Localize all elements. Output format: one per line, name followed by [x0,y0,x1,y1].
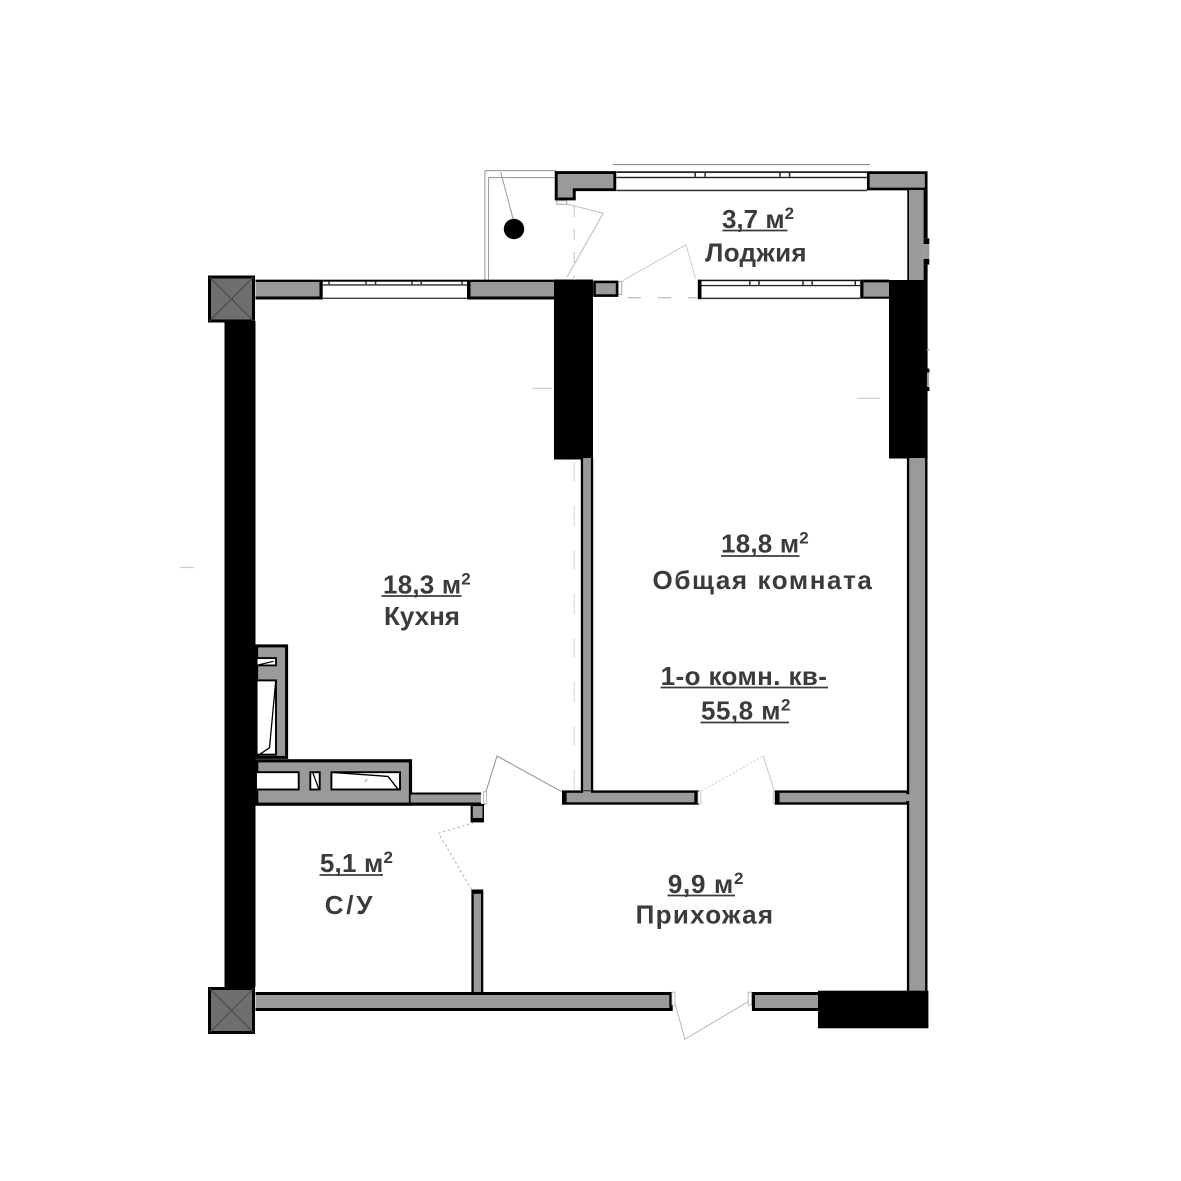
svg-text:9,9 м2: 9,9 м2 [668,869,744,899]
svg-text:3,7 м2: 3,7 м2 [722,204,794,234]
svg-text:Общая комната: Общая комната [653,565,874,595]
svg-text:Кухня: Кухня [384,601,460,631]
svg-text:5,1 м2: 5,1 м2 [320,848,393,878]
svg-text:С/У: С/У [325,890,376,920]
svg-text:1-о комн. кв-: 1-о комн. кв- [661,661,828,691]
svg-text:18,8 м2: 18,8 м2 [721,529,809,559]
svg-text:18,3 м2: 18,3 м2 [383,570,471,600]
svg-text:55,8 м2: 55,8 м2 [701,696,791,726]
svg-text:Прихожая: Прихожая [636,900,775,930]
svg-text:Лоджия: Лоджия [705,238,807,268]
